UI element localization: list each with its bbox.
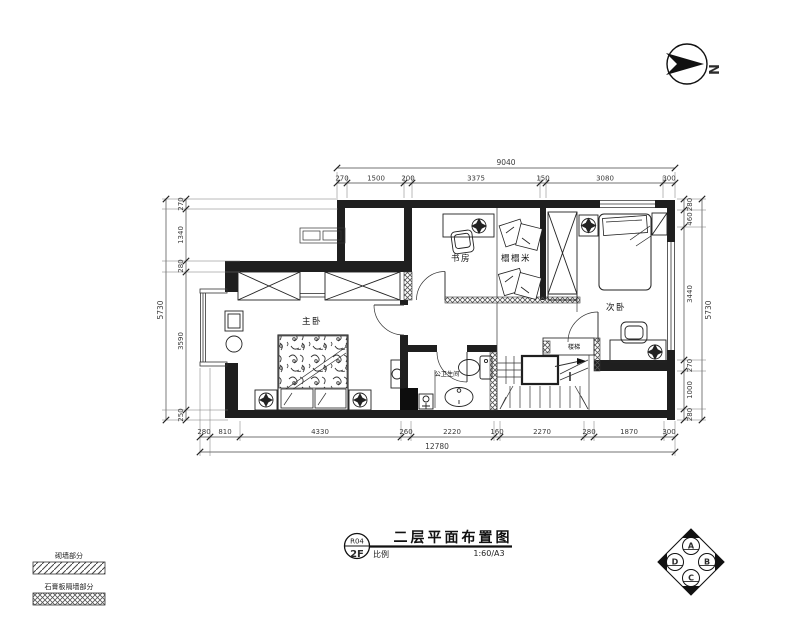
dim-label: 270 xyxy=(177,197,185,210)
dim-label: 3440 xyxy=(686,285,694,303)
legend-brick-swatch xyxy=(33,562,105,574)
desk-icon xyxy=(443,214,494,254)
tatami: 榻榻米 xyxy=(498,219,542,299)
floor-plan-sheet: N xyxy=(0,0,800,640)
room-label-bathroom: 公卫生间 xyxy=(435,370,460,378)
dim-label: 810 xyxy=(218,428,231,436)
dim-label: 1500 xyxy=(367,175,385,183)
wall-legend: 砌墙部分 石膏板隔墙部分 xyxy=(33,551,105,605)
gypsum-partitions xyxy=(404,272,600,410)
dim-label: 300 xyxy=(662,175,675,183)
stair-direction-arrow-icon xyxy=(555,358,586,381)
dim-total-left: 5730 xyxy=(156,300,165,319)
north-label: N xyxy=(705,64,720,75)
side-table-icon xyxy=(225,311,243,352)
room-label-second-bedroom: 次卧 xyxy=(606,302,626,313)
legend-gypsum-swatch xyxy=(33,593,105,605)
study-door-icon xyxy=(417,272,446,301)
dim-label: 200 xyxy=(401,175,414,183)
dim-label: 280 xyxy=(177,259,185,272)
wardrobe-icon xyxy=(238,272,400,300)
sink-icon xyxy=(445,388,473,407)
elevation-marker: A B C D xyxy=(658,529,724,595)
drawing-number: R04 xyxy=(350,538,364,546)
room-label-tatami: 榻榻米 xyxy=(501,253,531,264)
legend-gypsum-label: 石膏板隔墙部分 xyxy=(45,582,94,591)
dim-label: 270 xyxy=(686,359,694,372)
elev-c: C xyxy=(688,574,694,583)
cushion-icon xyxy=(499,219,542,250)
dim-label: 160 xyxy=(490,428,503,436)
dim-label: 460 xyxy=(686,212,694,225)
dimension-chain-right: 5730 280 460 3440 270 1000 280 xyxy=(677,196,713,423)
bed-icon xyxy=(599,214,651,290)
dim-label: 150 xyxy=(536,175,549,183)
elev-b: B xyxy=(704,558,710,567)
dim-label: 3080 xyxy=(596,175,614,183)
cushion-icon xyxy=(498,268,541,299)
dim-label: 1870 xyxy=(620,428,638,436)
dim-label: 1000 xyxy=(686,381,694,399)
dim-label: 4330 xyxy=(311,428,329,436)
bathroom: 公卫生间 xyxy=(419,356,492,409)
floor-code: 2F xyxy=(350,549,364,560)
dim-label: 280 xyxy=(686,198,694,211)
dim-label: 280 xyxy=(197,428,210,436)
wardrobe-icon xyxy=(548,212,577,300)
room-label-master: 主卧 xyxy=(302,316,322,327)
dim-total-right: 5730 xyxy=(704,300,713,319)
study: 书房 xyxy=(443,214,494,264)
elev-d: D xyxy=(672,558,679,567)
washer-icon xyxy=(419,394,433,409)
desk-icon xyxy=(610,322,666,362)
title-block: R04 2F 二层平面布置图 比例 1:60/A3 xyxy=(345,529,513,560)
dim-label: 260 xyxy=(399,428,412,436)
dim-total-top: 9040 xyxy=(496,158,515,167)
toilet-icon xyxy=(459,356,493,379)
dim-label: 1340 xyxy=(177,226,185,244)
master-door-icon xyxy=(374,305,404,335)
drawing-title: 二层平面布置图 xyxy=(394,529,513,546)
elev-a: A xyxy=(688,542,695,551)
bed-icon xyxy=(278,335,348,410)
north-arrow: N xyxy=(666,44,720,84)
north-arrow-icon xyxy=(666,53,704,75)
second-bedroom-door-icon xyxy=(568,312,598,342)
dim-label: 2270 xyxy=(533,428,551,436)
dim-label: 280 xyxy=(582,428,595,436)
dim-total-bottom: 12780 xyxy=(425,442,449,451)
dim-label: 3590 xyxy=(177,332,185,350)
dim-label: 250 xyxy=(177,408,185,421)
second-bedroom: 次卧 xyxy=(548,212,667,362)
legend-brick-label: 砌墙部分 xyxy=(55,551,83,560)
corner-shelf-icon xyxy=(652,213,667,235)
dim-label: 2220 xyxy=(443,428,461,436)
dim-label: 300 xyxy=(662,428,675,436)
dim-label: 3375 xyxy=(467,175,485,183)
room-label-study: 书房 xyxy=(451,253,471,264)
scale-label: 比例 xyxy=(373,549,389,559)
dimension-chain-top: 9040 270 1500 200 3375 150 3080 300 xyxy=(334,158,678,198)
room-label-stairs: 楼梯 xyxy=(568,343,580,351)
scale-value: 1:60/A3 xyxy=(473,549,504,558)
floor-plan-drawing: N xyxy=(0,0,800,640)
dim-label: 280 xyxy=(686,408,694,421)
master-bedroom: 主卧 xyxy=(225,272,404,410)
witness-lines xyxy=(337,172,675,198)
dim-label: 270 xyxy=(335,175,348,183)
nightstand-icon xyxy=(579,215,598,236)
